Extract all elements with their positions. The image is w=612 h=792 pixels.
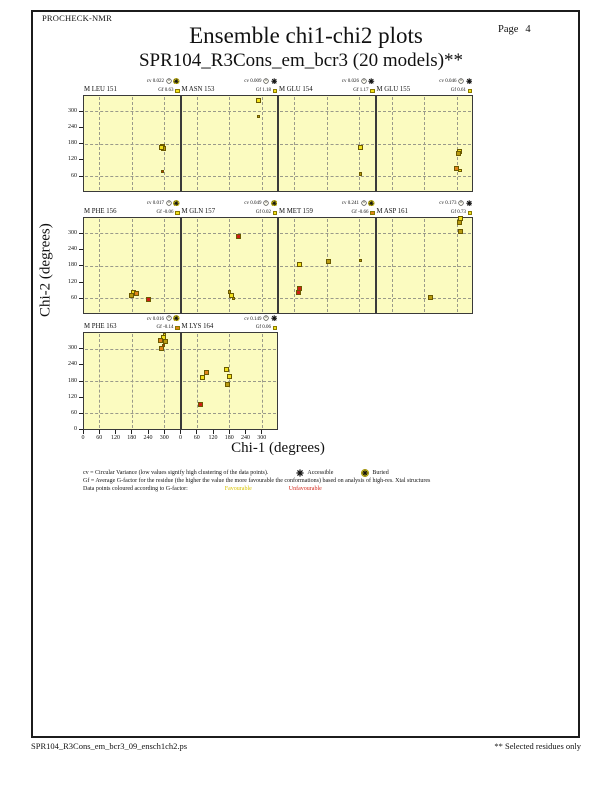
cv-value: cv 0.009 <box>244 79 261 86</box>
cv-value: cv 0.016 <box>147 317 164 324</box>
subplot-header: M LEU 151cv 0.022Gf 0.63 <box>83 76 181 94</box>
gf-color-swatch <box>468 89 473 94</box>
plot-point <box>458 169 461 172</box>
residue-label: M ASN 153 <box>182 86 215 93</box>
plot-point <box>236 234 241 239</box>
x-tick <box>164 430 165 434</box>
cv-value: cv 0.241 <box>342 201 359 208</box>
gf-color-swatch <box>273 211 278 216</box>
gf-color-swatch <box>175 89 180 94</box>
residue-label: M PHE 163 <box>84 323 116 330</box>
accessible-label: Accessible <box>307 469 333 477</box>
plot-point <box>227 374 232 379</box>
subplot-header: M GLU 154cv 0.026Gf 1.17 <box>278 76 376 94</box>
buried-label: Buried <box>372 469 388 477</box>
plot-point <box>358 145 363 150</box>
cv-dial-icon <box>458 200 464 210</box>
gf-value: Gf 1.17 <box>353 88 368 95</box>
plot-point <box>161 170 164 173</box>
grid-line <box>280 111 374 112</box>
grid-line <box>85 111 179 112</box>
gf-value: Gf 0.63 <box>158 88 173 95</box>
plot-point <box>458 229 463 234</box>
x-tick <box>229 430 230 434</box>
gf-color-swatch <box>175 326 180 331</box>
gf-value: Gf 0.61 <box>451 88 466 95</box>
x-tick-label: 300 <box>252 435 272 441</box>
cv-value: cv 0.149 <box>244 317 261 324</box>
accessible-star-icon <box>466 200 473 210</box>
x-tick <box>148 430 149 434</box>
accessible-star-icon <box>466 78 473 88</box>
grid-line <box>85 233 179 234</box>
gf-value: Gf -0.14 <box>157 325 174 332</box>
accessible-star-icon <box>271 315 278 325</box>
y-tick-label: 240 <box>57 246 77 252</box>
x-tick <box>180 430 181 434</box>
plot-point <box>162 344 165 347</box>
subplot-header: M GLU 155cv 0.046Gf 0.61 <box>376 76 474 94</box>
plot-point <box>134 291 139 296</box>
y-tick-label: 180 <box>57 378 77 384</box>
y-tick-label: 300 <box>57 230 77 236</box>
y-tick-label: 0 <box>57 426 77 432</box>
grid-line <box>183 233 277 234</box>
gf-value: Gf -0.66 <box>352 210 369 217</box>
gf-color-swatch <box>370 89 375 94</box>
y-tick <box>79 282 83 283</box>
y-tick-label: 60 <box>57 295 77 301</box>
residue-label: M LYS 164 <box>182 323 214 330</box>
cv-value: cv 0.049 <box>244 201 261 208</box>
y-tick-label: 240 <box>57 361 77 367</box>
grid-line <box>85 349 179 350</box>
legend-line-gf: Gf = Average G-factor for the residue (t… <box>83 477 553 485</box>
subplot-stats: cv 0.009Gf 1.18 <box>244 78 277 95</box>
y-tick <box>79 159 83 160</box>
accessible-star-icon <box>271 78 278 88</box>
x-tick <box>99 430 100 434</box>
cv-value: cv 0.017 <box>147 201 164 208</box>
cv-dial-icon <box>263 78 269 88</box>
cv-value: cv 0.173 <box>439 201 456 208</box>
gf-color-swatch <box>468 211 473 216</box>
plot-point <box>297 262 302 267</box>
x-tick <box>83 430 84 434</box>
subplot-stats: cv 0.026Gf 1.17 <box>342 78 375 95</box>
cv-definition: cv = Circular Variance (low values signi… <box>83 469 268 477</box>
y-tick-label: 120 <box>57 279 77 285</box>
y-tick <box>79 233 83 234</box>
gf-color-swatch <box>273 326 278 331</box>
x-tick <box>196 430 197 434</box>
gf-color-swatch <box>370 211 375 216</box>
y-tick-label: 300 <box>57 108 77 114</box>
subplot-stats: cv 0.149Gf 0.06 <box>244 315 277 332</box>
y-tick <box>79 413 83 414</box>
y-tick <box>79 127 83 128</box>
colour-key-text: Data points coloured according to G-fact… <box>83 486 188 492</box>
y-tick-label: 240 <box>57 124 77 130</box>
cv-dial-icon <box>263 200 269 210</box>
buried-star-icon <box>368 200 375 210</box>
plot-point <box>129 293 134 298</box>
y-tick-label: 120 <box>57 394 77 400</box>
cv-dial-icon <box>263 315 269 325</box>
selected-residues-note: ** Selected residues only <box>494 741 581 751</box>
plot-point <box>257 115 260 118</box>
plot-point <box>204 370 209 375</box>
buried-star-icon <box>173 200 180 210</box>
y-tick <box>79 176 83 177</box>
procheck-page: PROCHECK-NMR Page4 Ensemble chi1-chi2 pl… <box>0 0 612 792</box>
subplot-header: M MET 159cv 0.241Gf -0.66 <box>278 198 376 216</box>
residue-label: M GLU 155 <box>377 86 411 93</box>
cv-value: cv 0.046 <box>439 79 456 86</box>
subplot-header: M ASN 153cv 0.009Gf 1.18 <box>181 76 279 94</box>
page-subtitle: SPR104_R3Cons_em_bcr3 (20 models)** <box>41 50 561 72</box>
grid-line <box>378 111 472 112</box>
x-tick <box>213 430 214 434</box>
page-title: Ensemble chi1-chi2 plots <box>41 23 571 49</box>
accessible-star-icon <box>296 469 304 477</box>
y-tick-label: 180 <box>57 140 77 146</box>
cv-dial-icon <box>166 200 172 210</box>
gf-color-swatch <box>273 89 278 94</box>
plot-point <box>359 172 362 175</box>
plot-point <box>457 220 462 225</box>
residue-label: M GLU 154 <box>279 86 313 93</box>
residue-label: M GLN 157 <box>182 208 216 215</box>
subplot-header: M PHE 156cv 0.017Gf -0.06 <box>83 198 181 216</box>
y-axis-label: Chi-2 (degrees) <box>36 150 56 390</box>
cv-dial-icon <box>166 315 172 325</box>
residue-label: M ASP 161 <box>377 208 408 215</box>
subplot-header: M ASP 161cv 0.173Gf 0.73 <box>376 198 474 216</box>
y-tick <box>79 364 83 365</box>
subplot-stats: cv 0.173Gf 0.73 <box>439 200 472 217</box>
buried-star-icon <box>173 78 180 88</box>
residue-label: M PHE 156 <box>84 208 116 215</box>
gf-color-swatch <box>175 211 180 216</box>
cv-dial-icon <box>166 78 172 88</box>
plot-point <box>256 98 261 103</box>
y-tick-label: 120 <box>57 156 77 162</box>
x-axis-label: Chi-1 (degrees) <box>128 440 428 457</box>
y-tick <box>79 143 83 144</box>
favourable-label: Favourable <box>225 486 252 492</box>
x-tick <box>131 430 132 434</box>
grid-line <box>183 111 277 112</box>
subplot-header: M PHE 163cv 0.016Gf -0.14 <box>83 313 181 331</box>
legend-line-colour: Data points coloured according to G-fact… <box>83 485 553 493</box>
plot-point <box>296 290 301 295</box>
legend-block: cv = Circular Variance (low values signi… <box>83 469 553 494</box>
gf-value: Gf 1.18 <box>256 88 271 95</box>
plot-point <box>232 297 235 300</box>
plot-point <box>163 333 166 336</box>
plot-point <box>200 375 205 380</box>
grid-line <box>378 233 472 234</box>
cv-value: cv 0.022 <box>147 79 164 86</box>
grid-line <box>280 233 374 234</box>
buried-star-icon <box>173 315 180 325</box>
y-tick-label: 60 <box>57 410 77 416</box>
y-tick-label: 180 <box>57 262 77 268</box>
buried-star-icon <box>361 469 369 477</box>
cv-dial-icon <box>458 78 464 88</box>
residue-label: M MET 159 <box>279 208 313 215</box>
grid-line <box>183 349 277 350</box>
app-label: PROCHECK-NMR <box>42 13 112 23</box>
gf-value: Gf -0.06 <box>157 210 174 217</box>
y-tick <box>79 249 83 250</box>
accessible-star-icon <box>368 78 375 88</box>
subplot-stats: cv 0.017Gf -0.06 <box>147 200 180 217</box>
x-tick <box>261 430 262 434</box>
subplot-stats: cv 0.022Gf 0.63 <box>147 78 180 95</box>
subplot-stats: cv 0.046Gf 0.61 <box>439 78 472 95</box>
plot-point <box>146 297 151 302</box>
subplot-stats: cv 0.049Gf 0.02 <box>244 200 277 217</box>
legend-line-cv: cv = Circular Variance (low values signi… <box>83 469 553 477</box>
filename-footer: SPR104_R3Cons_em_bcr3_09_ensch1ch2.ps <box>31 741 187 751</box>
gf-value: Gf 0.06 <box>256 325 271 332</box>
subplot-header: M GLN 157cv 0.049Gf 0.02 <box>181 198 279 216</box>
x-tick <box>115 430 116 434</box>
plot-point <box>225 382 230 387</box>
y-tick <box>79 111 83 112</box>
plot-point <box>359 259 362 262</box>
cv-dial-icon <box>361 78 367 88</box>
subplot-stats: cv 0.241Gf -0.66 <box>342 200 375 217</box>
residue-label: M LEU 151 <box>84 86 117 93</box>
y-tick <box>79 265 83 266</box>
buried-star-icon <box>271 200 278 210</box>
subplot-header: M LYS 164cv 0.149Gf 0.06 <box>181 313 279 331</box>
subplot-stats: cv 0.016Gf -0.14 <box>147 315 180 332</box>
y-tick <box>79 397 83 398</box>
y-tick-label: 60 <box>57 173 77 179</box>
y-tick <box>79 381 83 382</box>
y-tick <box>79 348 83 349</box>
x-tick <box>245 430 246 434</box>
cv-value: cv 0.026 <box>342 79 359 86</box>
y-tick-label: 300 <box>57 345 77 351</box>
gf-value: Gf 0.02 <box>256 210 271 217</box>
plot-point <box>456 151 461 156</box>
cv-dial-icon <box>361 200 367 210</box>
plot-point <box>159 145 164 150</box>
plot-point <box>326 259 331 264</box>
y-tick <box>79 298 83 299</box>
plot-point <box>224 367 229 372</box>
plot-point <box>428 295 433 300</box>
plot-point <box>228 290 231 293</box>
plot-point <box>198 402 203 407</box>
unfavourable-label: Unfavourable <box>289 486 322 492</box>
